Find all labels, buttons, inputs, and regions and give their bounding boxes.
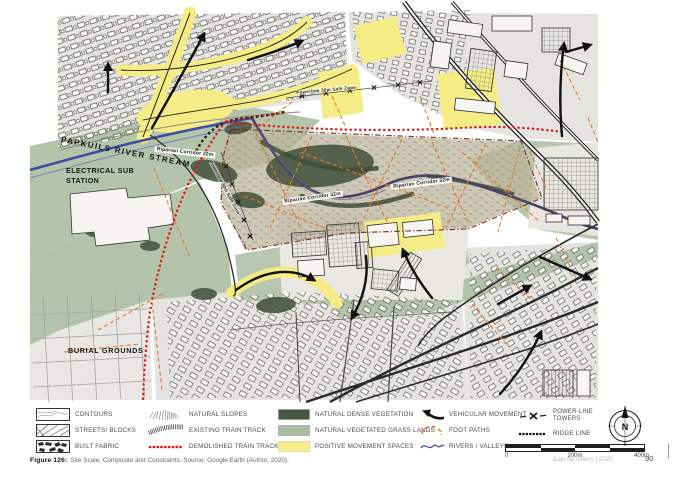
legend-label: POWER-LINE TOWERS bbox=[553, 409, 607, 423]
legend-label: NATURAL DENSE VEGETATION bbox=[315, 411, 413, 418]
grass-lands-swatch bbox=[278, 425, 310, 436]
legend-item-built-fabric: BUILT FABRIC bbox=[36, 438, 136, 454]
scale-zero-label: 0 bbox=[505, 453, 508, 459]
figure-caption-text: Site Scale, Composite and Constraints. S… bbox=[70, 457, 288, 464]
legend-column-swatches: CONTOURS STREETS/ BLOCKS BUILT FABRIC bbox=[36, 406, 136, 455]
legend-label: DEMOLISHED TRAIN TRACK bbox=[189, 443, 279, 450]
north-compass-icon: N bbox=[604, 402, 646, 448]
legend-item-grass-lands: NATURAL VEGETATED GRASS LANDS bbox=[278, 422, 435, 438]
page-edge-tick bbox=[668, 444, 669, 459]
dense-vegetation-swatch bbox=[278, 409, 310, 420]
legend-item-positive-spaces: POSITIVE MOVEMENT SPACES bbox=[278, 438, 435, 454]
figure-caption-number: Figure 126: bbox=[30, 457, 67, 464]
legend-label: NATURAL VEGETATED GRASS LANDS bbox=[315, 427, 435, 434]
legend-column-landuse: NATURAL DENSE VEGETATION NATURAL VEGETAT… bbox=[278, 406, 435, 455]
label-electrical-substation-line2: STATION bbox=[66, 176, 134, 186]
ridge-line-icon bbox=[518, 426, 548, 440]
legend-item-ridge-line: RIDGE LINE bbox=[518, 425, 607, 441]
legend-item-existing-train-track: EXISTING TRAIN TRACK bbox=[148, 422, 279, 438]
legend-label: EXISTING TRAIN TRACK bbox=[189, 427, 266, 434]
legend-label: CONTOURS bbox=[75, 411, 113, 418]
legend-label: STREETS/ BLOCKS bbox=[75, 427, 136, 434]
page-number: 90 bbox=[645, 454, 653, 463]
natural-slopes-icon bbox=[148, 407, 184, 421]
contours-swatch-icon bbox=[36, 408, 70, 421]
legend-item-streets-blocks: STREETS/ BLOCKS bbox=[36, 422, 136, 438]
power-line-towers-icon bbox=[518, 408, 548, 424]
built-fabric-swatch-icon bbox=[36, 440, 70, 453]
author-credit: Juan de Villiers | 2020 bbox=[552, 456, 613, 463]
label-electrical-substation-line1: ELECTRICAL SUB bbox=[66, 166, 134, 176]
legend-label: FOOT PATHS bbox=[449, 427, 490, 434]
legend-item-demolished-train-track: DEMOLISHED TRAIN TRACK bbox=[148, 438, 279, 454]
legend-item-power-line-towers: POWER-LINE TOWERS bbox=[518, 406, 607, 425]
legend-item-foot-paths: FOOT PATHS bbox=[420, 422, 527, 438]
legend-item-vehicular-movement: VEHICULAR MOVEMENT bbox=[420, 406, 527, 422]
legend-label: NATURAL SLOPES bbox=[189, 411, 247, 418]
label-burial-grounds: BURIAL GROUNDS bbox=[68, 346, 144, 355]
foot-paths-icon bbox=[420, 423, 444, 437]
demolished-train-track-icon bbox=[148, 439, 184, 453]
compass-north-label: N bbox=[622, 422, 629, 432]
legend-item-dense-vegetation: NATURAL DENSE VEGETATION bbox=[278, 406, 435, 422]
streets-blocks-swatch-icon bbox=[36, 424, 70, 437]
existing-train-track-icon bbox=[148, 423, 184, 437]
legend-label: POSITIVE MOVEMENT SPACES bbox=[315, 443, 414, 450]
figure-page: PAPKUILS RIVER STREAM ELECTRICAL SUB STA… bbox=[0, 0, 678, 480]
legend-label: VEHICULAR MOVEMENT bbox=[449, 411, 527, 418]
legend-label: RIDGE LINE bbox=[553, 430, 591, 437]
label-electrical-substation: ELECTRICAL SUB STATION bbox=[66, 166, 134, 185]
legend-label: BUILT FABRIC bbox=[75, 443, 119, 450]
figure-caption: Figure 126:Site Scale, Composite and Con… bbox=[30, 457, 450, 464]
vehicular-movement-icon bbox=[420, 407, 444, 421]
legend-item-contours: CONTOURS bbox=[36, 406, 136, 422]
legend-column-tracks: NATURAL SLOPES EXISTING TRAIN TRACK DEMO… bbox=[148, 406, 279, 455]
legend-column-misc: POWER-LINE TOWERS RIDGE LINE bbox=[518, 406, 607, 441]
legend-item-natural-slopes: NATURAL SLOPES bbox=[148, 406, 279, 422]
rivers-valleys-icon bbox=[420, 439, 444, 453]
positive-spaces-swatch bbox=[278, 441, 310, 452]
legend-label: RIVERS / VALLEYS bbox=[449, 443, 508, 450]
